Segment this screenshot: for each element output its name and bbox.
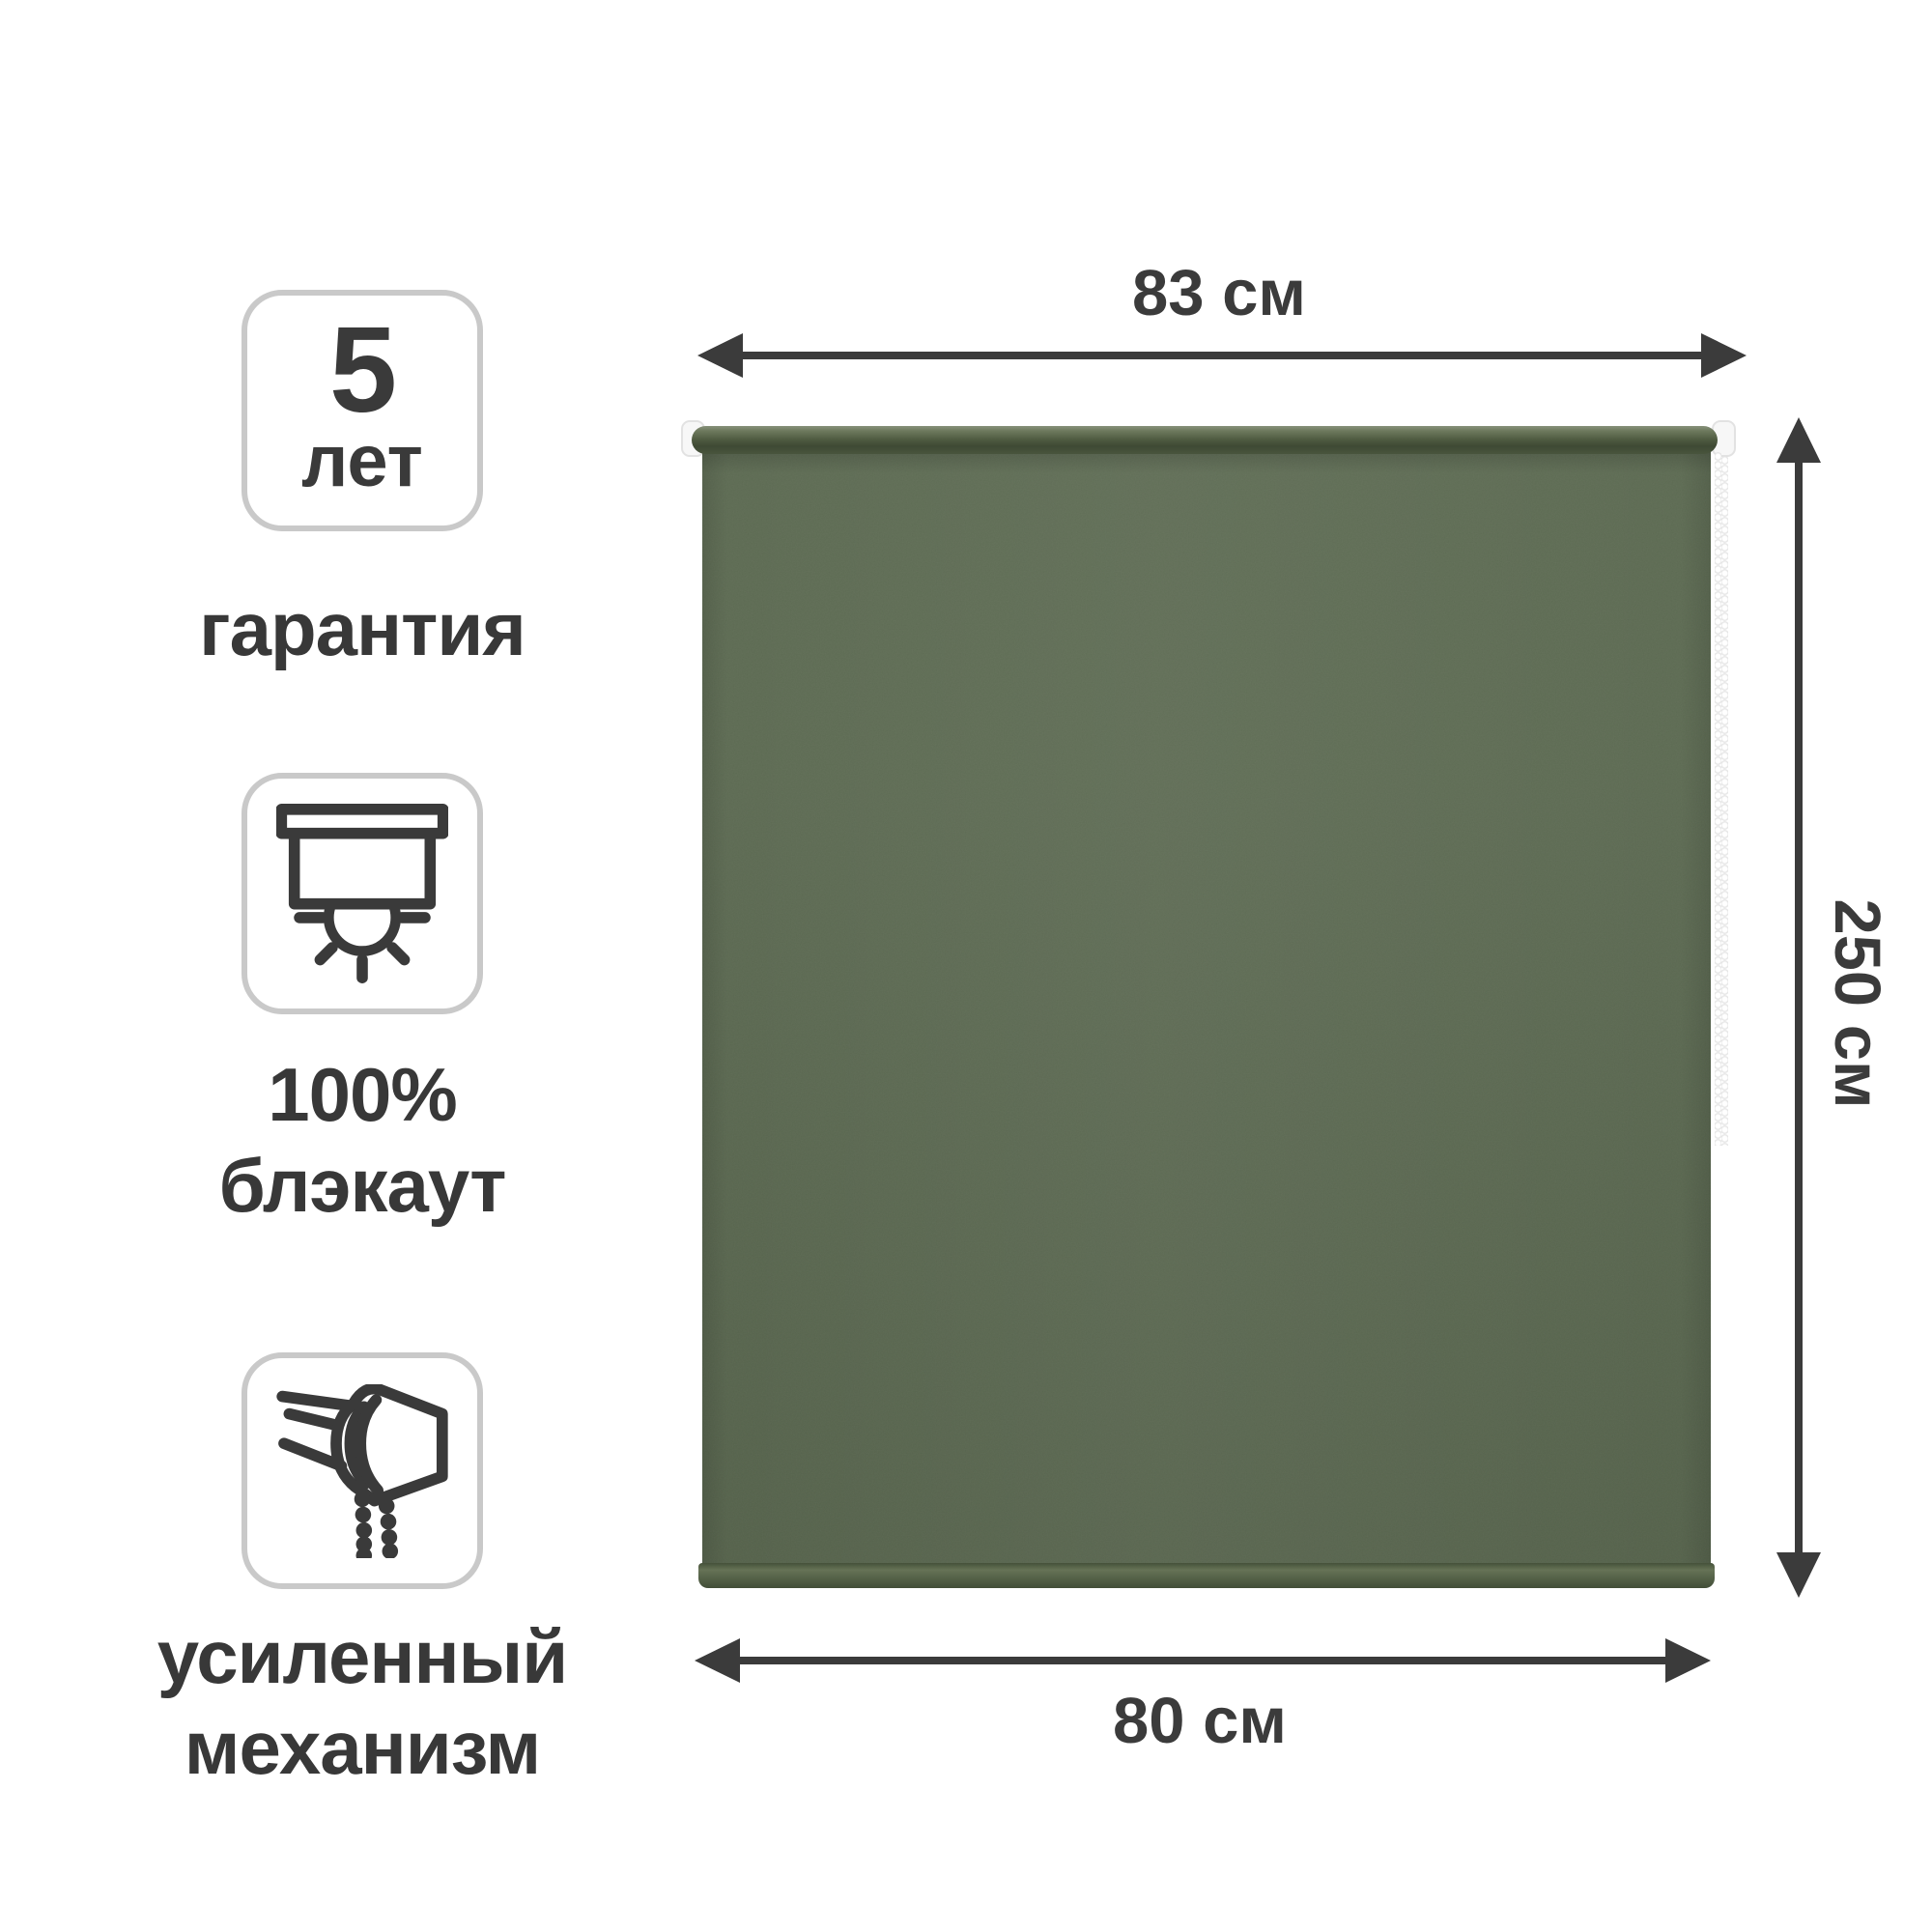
dimension-bottom-width-label: 80 см	[910, 1685, 1490, 1758]
roller-blind-product-infographic: 5 лет гарантия 100% бл	[0, 0, 1932, 1932]
mechanism-label-line2: механизм	[185, 1705, 540, 1790]
bead-chain-strand	[1721, 456, 1728, 1146]
roller-mechanism-icon	[275, 1384, 449, 1558]
dimension-height-arrow	[1776, 417, 1821, 1598]
fabric-shading	[702, 440, 1711, 1565]
dimension-top-width-label: 83 см	[929, 257, 1509, 330]
mechanism-badge	[241, 1352, 483, 1589]
bead-chain-strand	[1715, 452, 1721, 1146]
roller-tube	[692, 426, 1718, 454]
warranty-label: гарантия	[24, 583, 700, 674]
dimension-height-label: 250 см	[1819, 801, 1894, 1207]
warranty-years-value: 5	[329, 322, 395, 418]
blackout-blind-icon	[276, 804, 448, 983]
dimension-bottom-arrow	[695, 1638, 1711, 1683]
warranty-badge: 5 лет	[241, 290, 483, 531]
arrowhead-right-icon	[1701, 333, 1747, 378]
blind-bottom-hem	[698, 1563, 1715, 1588]
blackout-badge	[241, 773, 483, 1014]
blind-fabric-panel	[702, 440, 1711, 1565]
blackout-label: 100% блэкаут	[24, 1049, 700, 1231]
warranty-years-unit: лет	[301, 424, 423, 499]
arrowhead-right-icon	[1665, 1638, 1711, 1683]
blackout-label-line1: 100%	[268, 1052, 457, 1137]
mechanism-label-line1: усиленный	[157, 1614, 567, 1699]
mechanism-label: усиленный механизм	[24, 1611, 700, 1793]
blackout-label-line2: блэкаут	[219, 1143, 506, 1228]
arrowhead-down-icon	[1776, 1552, 1821, 1598]
dimension-top-arrow	[697, 333, 1747, 378]
